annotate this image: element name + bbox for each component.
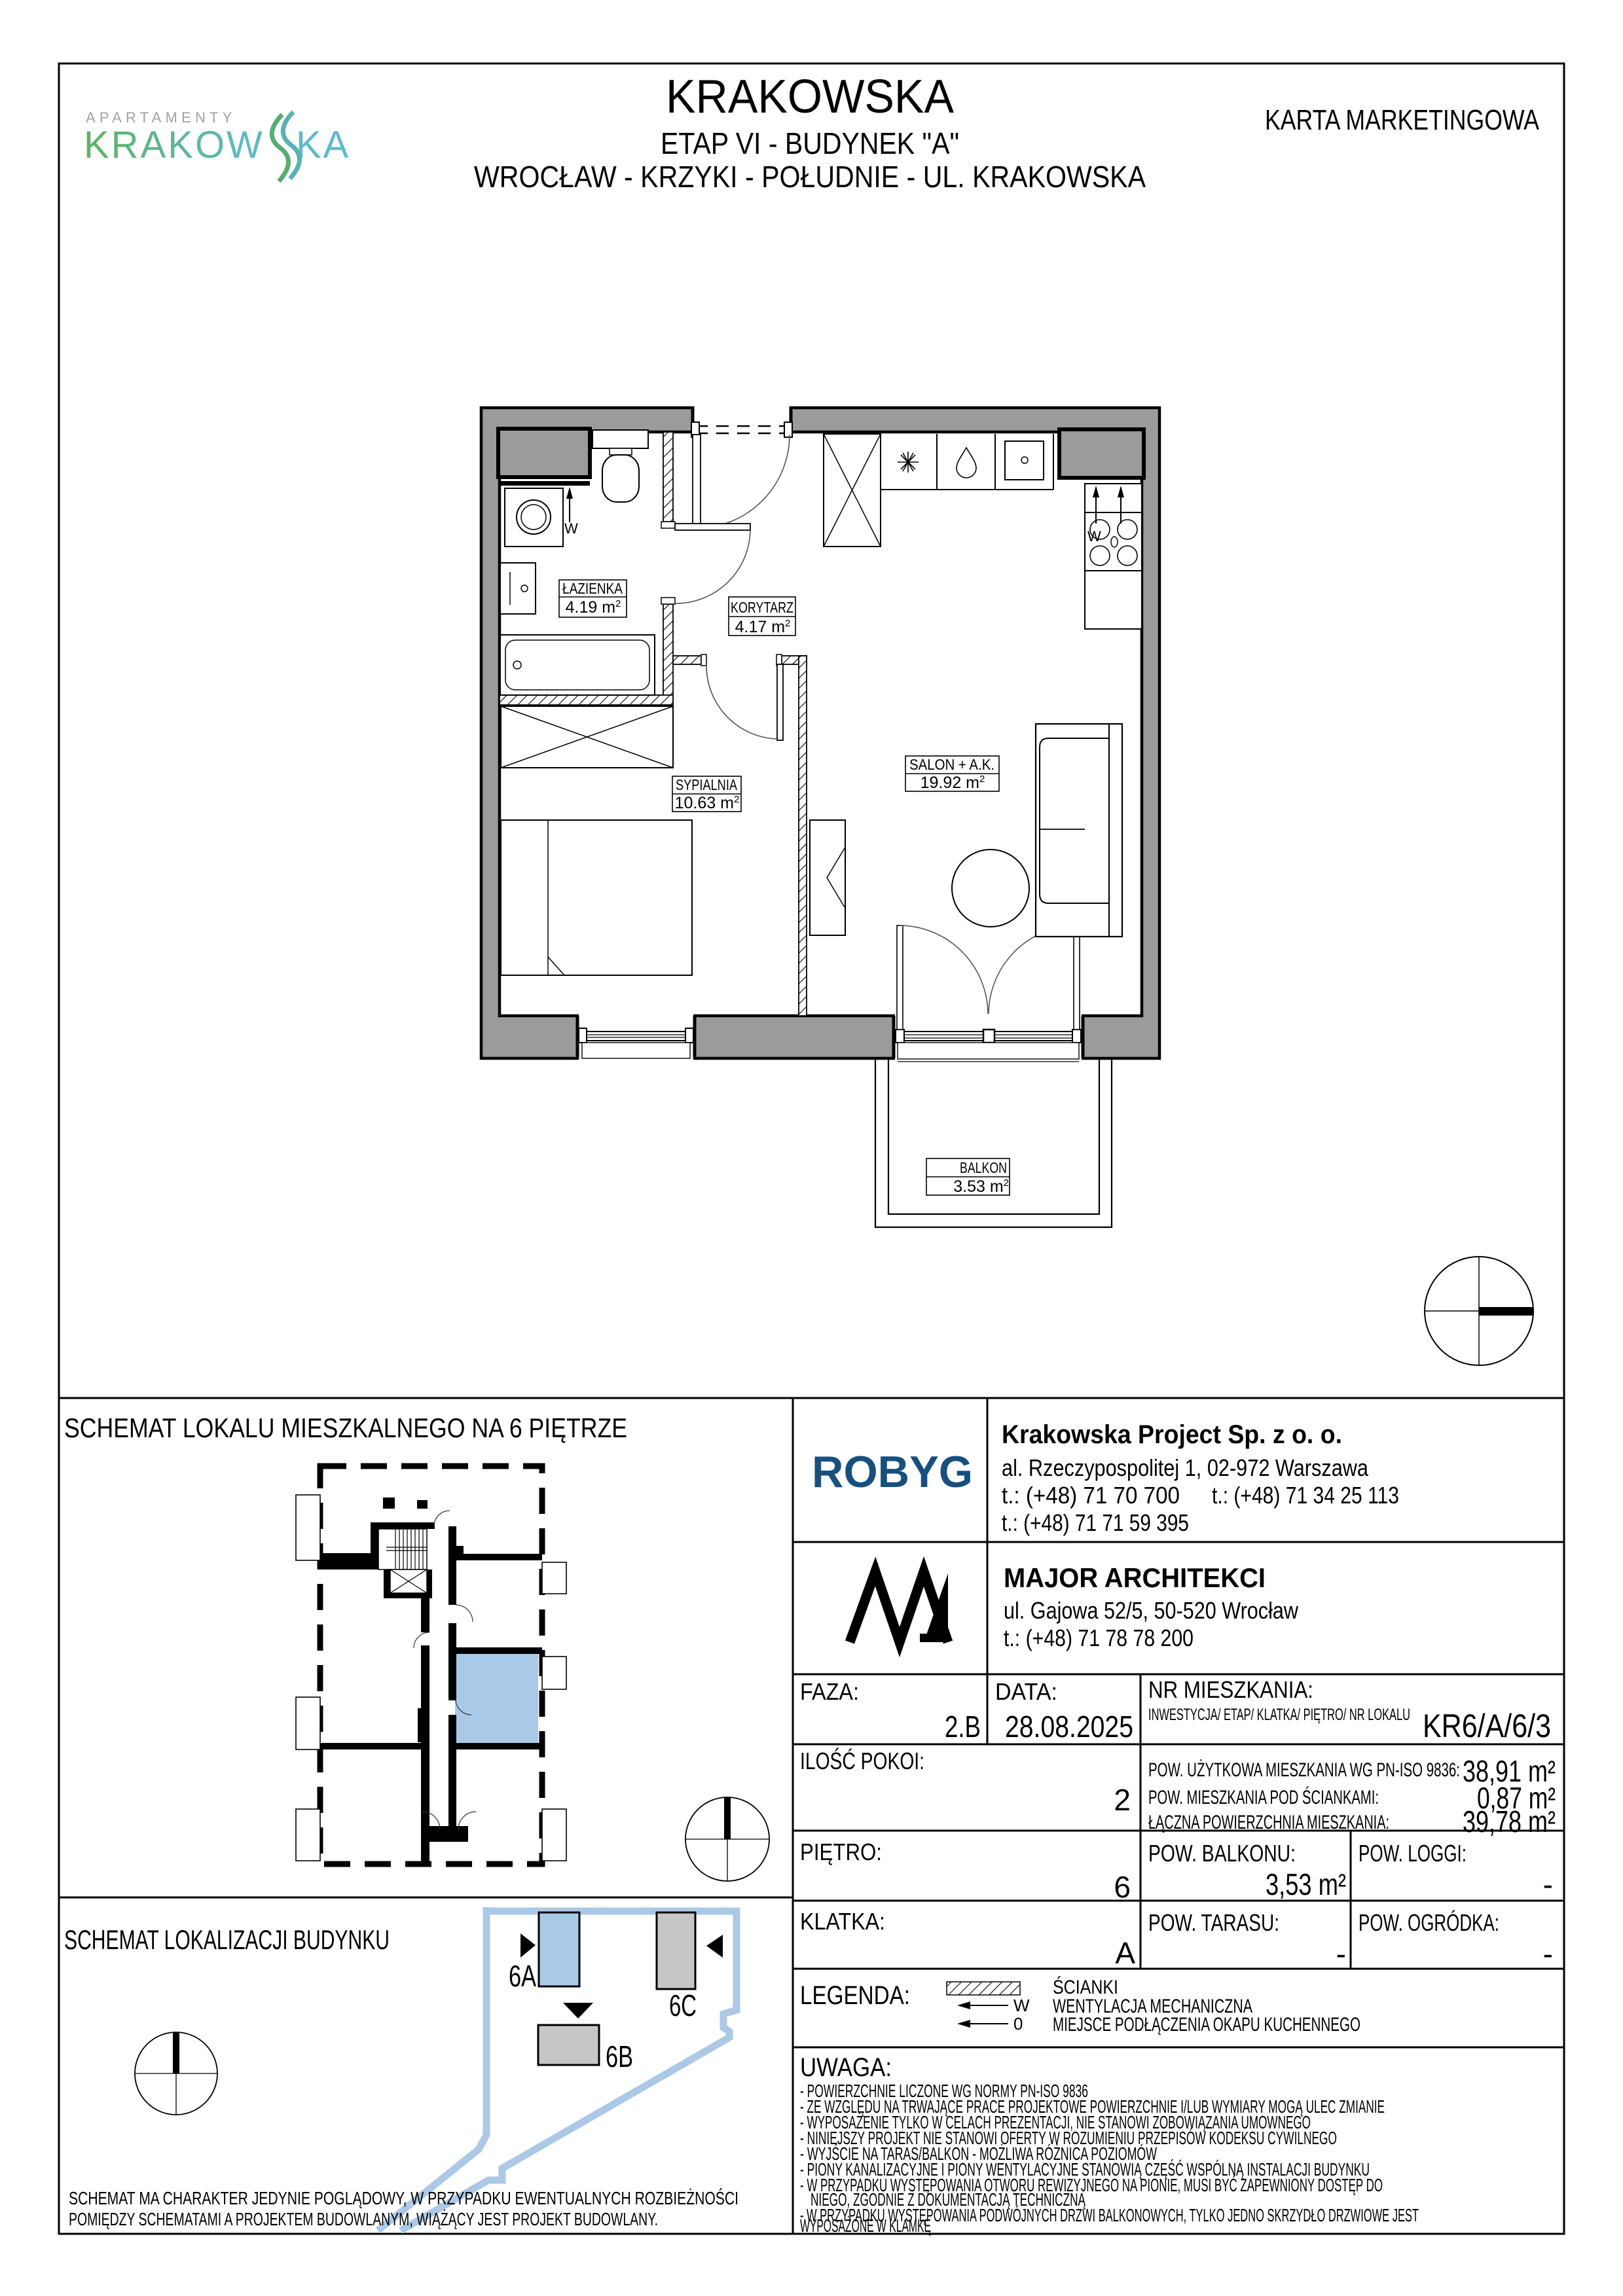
svg-text:POW. MIESZKANIA POD ŚCIANKAMI:: POW. MIESZKANIA POD ŚCIANKAMI: [1148,1786,1379,1808]
svg-text:KORYTARZ: KORYTARZ [731,599,793,616]
svg-text:ILOŚĆ POKOI:: ILOŚĆ POKOI: [800,1747,924,1774]
svg-text:ul. Gajowa 52/5, 50-520 Wrocła: ul. Gajowa 52/5, 50-520 Wrocław [1004,1597,1299,1624]
svg-text:6B: 6B [606,2039,633,2073]
svg-text:t.: (+48) 71 70 700: t.: (+48) 71 70 700 [1002,1482,1180,1509]
svg-text:KA: KA [296,124,350,166]
svg-text:SCHEMAT LOKALIZACJI BUDYNKU: SCHEMAT LOKALIZACJI BUDYNKU [64,1924,390,1955]
svg-text:SALON + A.K.: SALON + A.K. [909,756,994,773]
svg-text:28.08.2025: 28.08.2025 [1005,1710,1133,1744]
svg-text:Krakowska Project Sp. z o. o.: Krakowska Project Sp. z o. o. [1002,1420,1342,1449]
svg-text:POW. UŻYTKOWA MIESZKANIA WG PN: POW. UŻYTKOWA MIESZKANIA WG PN-ISO 9836: [1148,1759,1460,1781]
svg-text:UWAGA:: UWAGA: [800,2053,892,2082]
svg-text:ŁAZIENKA: ŁAZIENKA [562,580,623,597]
svg-text:POW. OGRÓDKA:: POW. OGRÓDKA: [1359,1909,1499,1936]
svg-text:MAJOR ARCHITEKCI: MAJOR ARCHITEKCI [1004,1562,1266,1593]
svg-text:W: W [1013,1996,1030,2015]
svg-text:SCHEMAT MA CHARAKTER JEDYNIE P: SCHEMAT MA CHARAKTER JEDYNIE POGLĄDOWY, … [69,2187,739,2208]
svg-text:ETAP VI - BUDYNEK "A": ETAP VI - BUDYNEK "A" [661,126,959,160]
svg-text:39,78 m²: 39,78 m² [1463,1804,1556,1839]
svg-text:PIĘTRO:: PIĘTRO: [800,1839,882,1865]
svg-text:6C: 6C [669,1988,697,2022]
svg-text:LEGENDA:: LEGENDA: [800,1981,910,2010]
svg-text:10.63 m2: 10.63 m2 [675,794,740,812]
svg-text:4.19 m2: 4.19 m2 [566,598,621,617]
svg-text:t.: (+48) 71 78 78 200: t.: (+48) 71 78 78 200 [1004,1624,1194,1651]
svg-text:KARTA MARKETINGOWA: KARTA MARKETINGOWA [1265,104,1540,136]
svg-text:BALKON: BALKON [960,1159,1007,1176]
svg-text:al. Rzeczypospolitej 1, 02-972: al. Rzeczypospolitej 1, 02-972 Warszawa [1002,1454,1369,1481]
svg-text:KR6/A/6/3: KR6/A/6/3 [1423,1708,1551,1744]
svg-text:4.17 m2: 4.17 m2 [735,618,791,636]
svg-text:-: - [1336,1937,1346,1971]
svg-text:0: 0 [1013,2014,1023,2034]
svg-text:2: 2 [1114,1783,1131,1817]
svg-text:POW. LOGGI:: POW. LOGGI: [1359,1840,1467,1867]
svg-text:19.92 m2: 19.92 m2 [921,774,985,792]
svg-text:WROCŁAW - KRZYKI - POŁUDNIE -: WROCŁAW - KRZYKI - POŁUDNIE - UL. KRAKOW… [474,160,1146,194]
svg-text:KRAKOWSKA: KRAKOWSKA [666,71,954,123]
svg-text:-: - [1543,1937,1553,1971]
svg-text:2.B: 2.B [945,1710,981,1744]
svg-text:t.: (+48) 71 34 25 113: t.: (+48) 71 34 25 113 [1212,1482,1399,1509]
svg-text:FAZA:: FAZA: [800,1678,859,1705]
svg-text:WYPOSAŻONE W KLAMKĘ: WYPOSAŻONE W KLAMKĘ [800,2215,931,2236]
svg-text:KRAKOW: KRAKOW [84,124,264,166]
svg-text:W: W [1087,528,1101,545]
svg-text:INWESTYCJA/ ETAP/ KLATKA/ PIĘT: INWESTYCJA/ ETAP/ KLATKA/ PIĘTRO/ NR LOK… [1148,1706,1410,1724]
svg-text:SYPIALNIA: SYPIALNIA [676,776,738,793]
svg-text:ŁĄCZNA POWIERZCHNIA MIESZKANIA: ŁĄCZNA POWIERZCHNIA MIESZKANIA: [1148,1812,1389,1833]
svg-text:NR MIESZKANIA:: NR MIESZKANIA: [1148,1676,1313,1703]
svg-text:DATA:: DATA: [995,1678,1057,1705]
svg-text:POW. TARASU:: POW. TARASU: [1148,1909,1279,1936]
svg-text:-: - [1543,1867,1553,1901]
svg-text:SCHEMAT LOKALU MIESZKALNEGO NA: SCHEMAT LOKALU MIESZKALNEGO NA 6 PIĘTRZE [64,1412,627,1443]
svg-text:MIEJSCE PODŁĄCZENIA OKAPU KUCH: MIEJSCE PODŁĄCZENIA OKAPU KUCHENNEGO [1053,2014,1360,2036]
svg-text:POMIĘDZY SCHEMATAMI A PROJEKTE: POMIĘDZY SCHEMATAMI A PROJEKTEM BUDOWLAN… [69,2209,658,2229]
svg-text:A: A [1115,1936,1135,1970]
svg-text:6: 6 [1114,1870,1131,1904]
svg-text:W: W [564,520,578,537]
svg-text:3,53 m²: 3,53 m² [1266,1867,1346,1901]
svg-text:POW. BALKONU:: POW. BALKONU: [1148,1840,1296,1867]
svg-text:KLATKA:: KLATKA: [800,1908,885,1935]
svg-text:6A: 6A [509,1959,536,1993]
svg-text:ŚCIANKI: ŚCIANKI [1053,1976,1118,1998]
svg-text:3.53 m2: 3.53 m2 [953,1177,1009,1196]
svg-text:t.: (+48) 71 71 59 395: t.: (+48) 71 71 59 395 [1002,1509,1189,1536]
svg-text:ROBYG: ROBYG [812,1447,973,1497]
